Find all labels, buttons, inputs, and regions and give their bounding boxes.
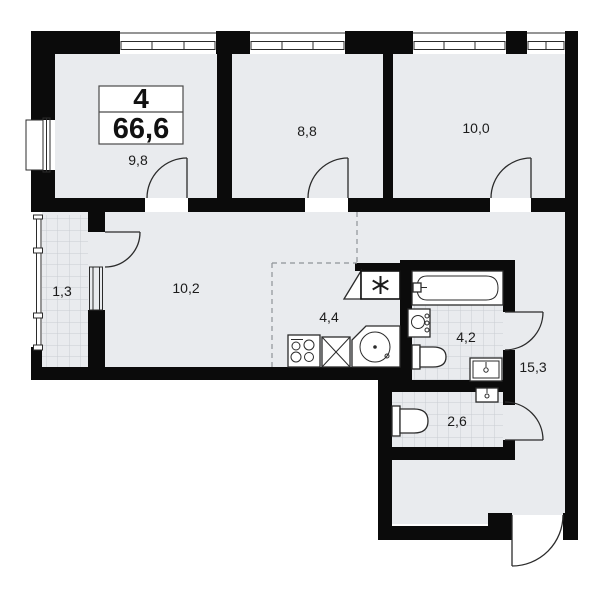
room-label-corridor: 15,3 xyxy=(519,359,546,375)
unit-rooms-count: 4 xyxy=(133,83,149,114)
window-bedroom3 xyxy=(413,33,506,50)
kitchen-sink xyxy=(352,326,400,367)
stove xyxy=(288,335,320,367)
window-left xyxy=(26,118,50,172)
room-label-bathroom: 4,2 xyxy=(456,329,476,345)
unit-info-box: 4 66,6 xyxy=(99,83,183,145)
floor-plan: 4 66,6 9,8 8,8 10,0 1,3 10,2 4,4 4,2 15,… xyxy=(0,0,608,600)
toilet-bathroom xyxy=(412,345,446,369)
washbasin-cabinet xyxy=(408,309,430,337)
washbasin-wc xyxy=(476,388,498,402)
room-label-balcony: 1,3 xyxy=(52,283,72,299)
toilet-wc xyxy=(392,406,428,436)
balcony-glazing xyxy=(34,215,43,350)
room-label-hall: 10,2 xyxy=(172,280,199,296)
window-bedroom1 xyxy=(120,33,216,50)
floor-plan-page: 4 66,6 9,8 8,8 10,0 1,3 10,2 4,4 4,2 15,… xyxy=(0,0,608,600)
unit-total-area: 66,6 xyxy=(113,113,169,145)
window-corner xyxy=(527,33,565,50)
window-bedroom2 xyxy=(250,33,345,50)
washbasin-bathroom xyxy=(470,358,502,381)
room-label-bedroom3: 10,0 xyxy=(462,120,489,136)
kitchen-cabinet xyxy=(322,337,350,367)
door-entrance xyxy=(512,515,563,566)
room-label-kitchen: 4,4 xyxy=(319,309,339,325)
room-label-wc: 2,6 xyxy=(447,413,467,429)
room-label-bedroom2: 8,8 xyxy=(297,123,317,139)
room-label-bedroom1: 9,8 xyxy=(128,152,148,168)
bathtub xyxy=(412,271,503,305)
